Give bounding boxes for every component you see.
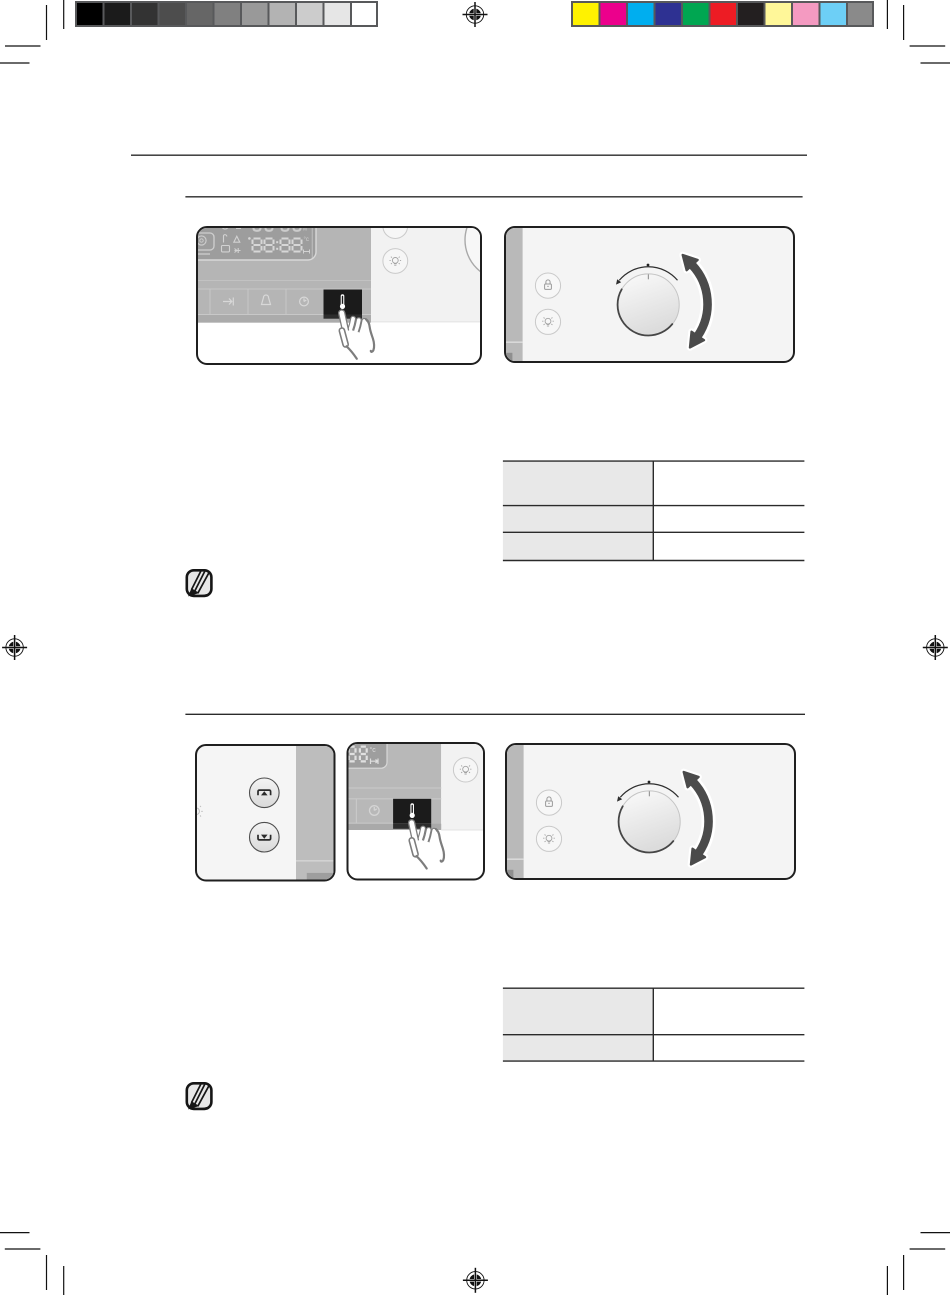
svg-text:°c: °c	[370, 746, 377, 754]
svg-text:°c: °c	[304, 237, 309, 243]
